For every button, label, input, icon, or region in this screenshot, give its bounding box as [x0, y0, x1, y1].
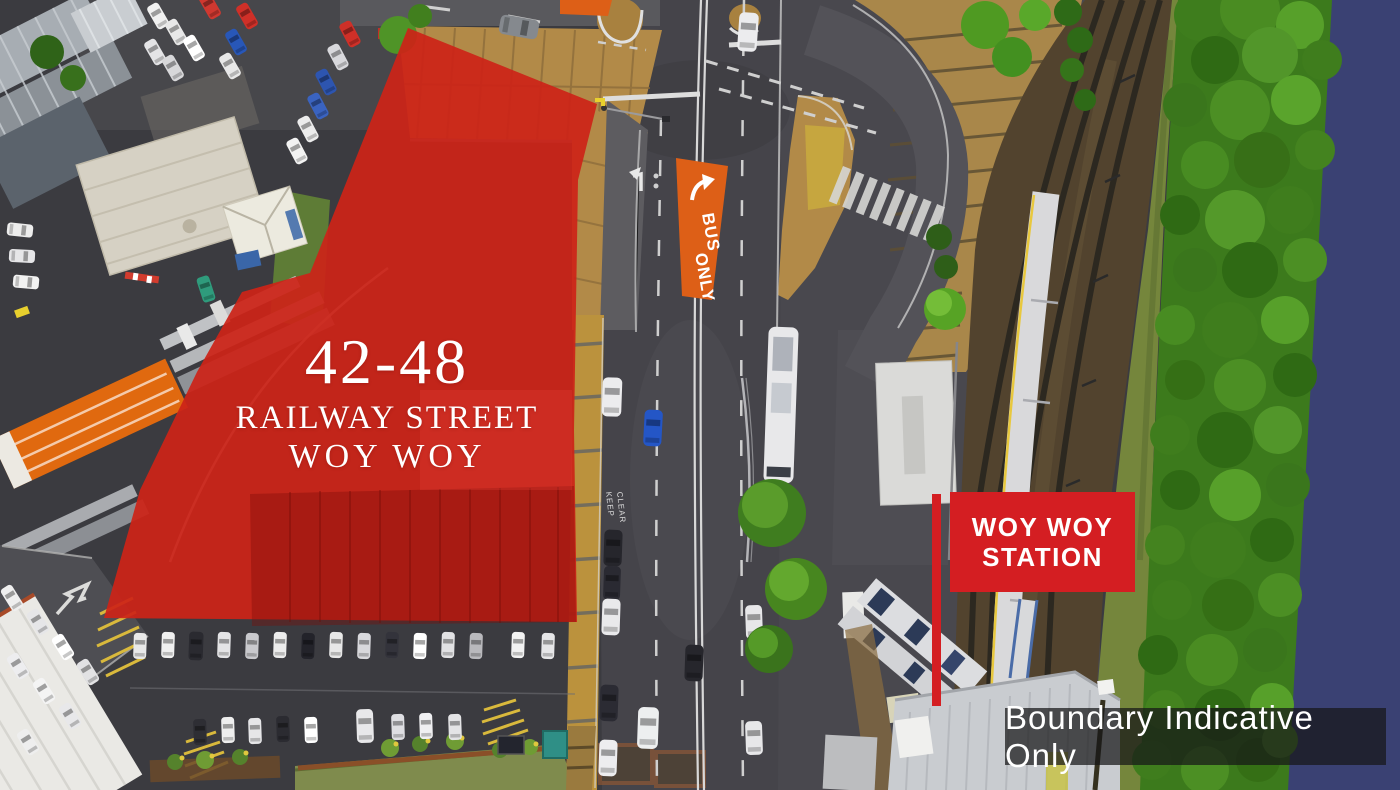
- station-callout: WOY WOY STATION: [950, 492, 1135, 592]
- disclaimer-badge: Boundary Indicative Only: [1005, 708, 1386, 765]
- station-callout-line2: STATION: [982, 542, 1103, 572]
- bus: [763, 327, 798, 484]
- station-marker-line: [932, 494, 941, 706]
- dumpster: [543, 731, 567, 758]
- aerial-marketing-image: BUS ONLY KEEP CLEAR: [0, 0, 1400, 790]
- blue-car: [643, 409, 663, 446]
- disclaimer-text: Boundary Indicative Only: [1005, 699, 1386, 775]
- station-callout-line1: WOY WOY: [972, 512, 1113, 542]
- aerial-photo-scene: BUS ONLY KEEP CLEAR: [0, 0, 1400, 790]
